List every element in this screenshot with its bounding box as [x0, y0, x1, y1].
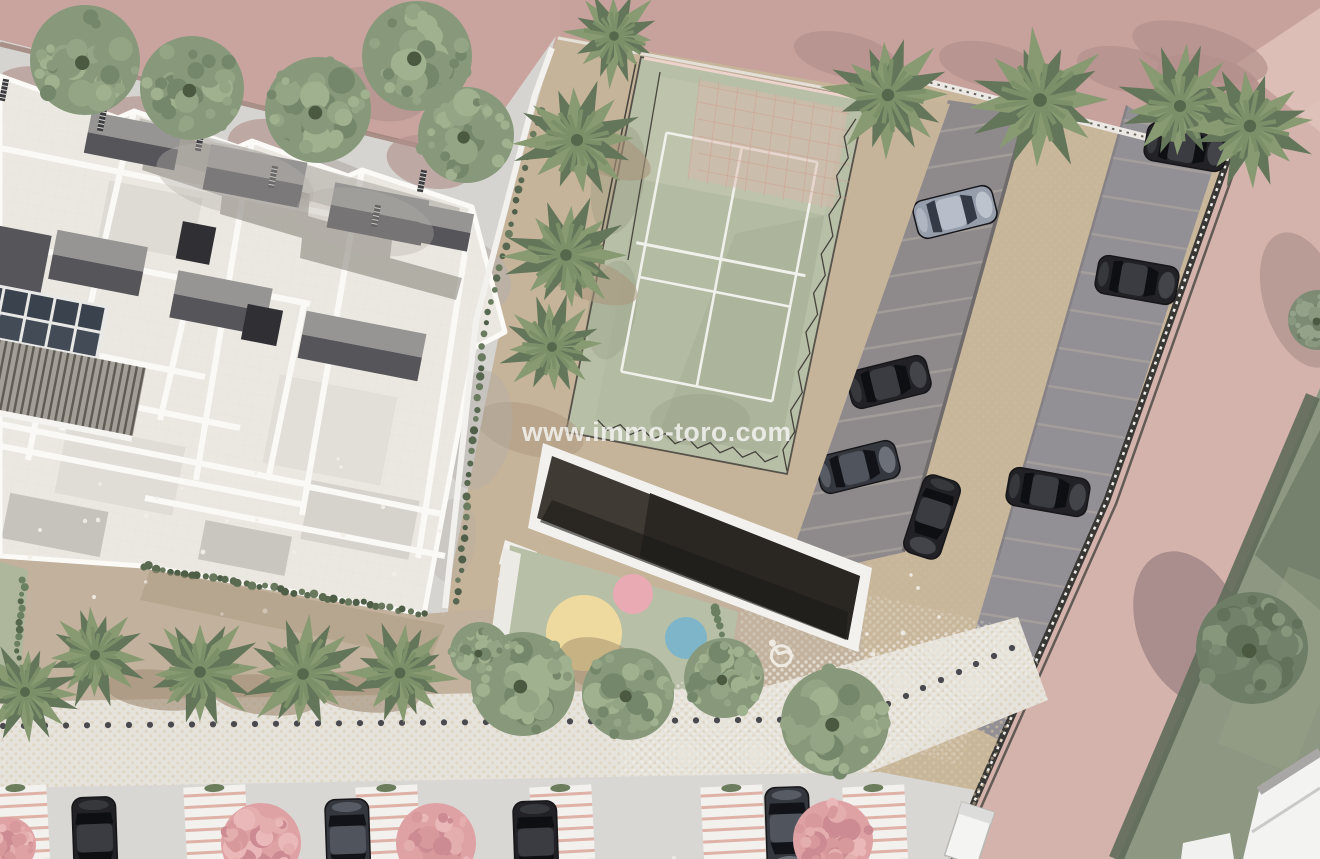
svg-text:www.immo-toro.com: www.immo-toro.com [599, 852, 870, 859]
svg-text:www.immo-toro.com: www.immo-toro.com [521, 417, 792, 447]
